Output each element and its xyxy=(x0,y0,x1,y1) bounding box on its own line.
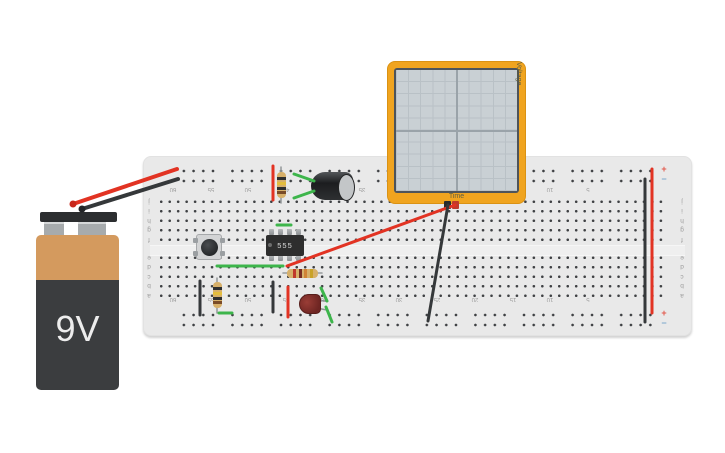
resistor-band xyxy=(277,182,286,185)
resistor-band xyxy=(277,177,286,180)
resistor-band xyxy=(213,297,222,300)
ic-label: 555 xyxy=(277,241,293,250)
pushbutton-leg xyxy=(193,238,198,243)
grid-major-horizontal xyxy=(396,130,517,132)
resistor-bottom-vertical[interactable] xyxy=(213,282,222,308)
ic-555-timer[interactable]: 555 xyxy=(266,235,304,256)
resistor-horizontal[interactable] xyxy=(287,269,318,278)
time-axis-label: Time xyxy=(388,193,525,200)
oscilloscope[interactable]: Time Voltage xyxy=(387,61,526,204)
pushbutton[interactable] xyxy=(196,234,222,260)
voltage-axis-label: Voltage xyxy=(515,62,522,193)
scope-terminal-red[interactable] xyxy=(452,201,459,209)
oscilloscope-screen xyxy=(396,70,517,191)
resistor-band xyxy=(310,269,313,278)
pushbutton-leg xyxy=(193,251,198,256)
resistor-band xyxy=(213,287,222,290)
resistor-band xyxy=(299,269,302,278)
pushbutton-leg xyxy=(220,251,225,256)
resistor-band xyxy=(277,191,286,194)
leads-layer xyxy=(0,0,725,453)
scope-terminal-black[interactable] xyxy=(444,201,451,209)
resistor-band xyxy=(277,187,286,190)
oscilloscope-bezel xyxy=(394,68,519,193)
resistor-band xyxy=(304,269,307,278)
led[interactable] xyxy=(299,294,321,314)
resistor-band xyxy=(293,269,296,278)
circuit-canvas: + − + − 60555045403530252015105 60555045… xyxy=(0,0,725,453)
resistor-band xyxy=(213,292,222,295)
resistor-band xyxy=(213,301,222,304)
resistor-top-vertical[interactable] xyxy=(277,172,286,198)
pushbutton-leg xyxy=(220,238,225,243)
pushbutton-cap[interactable] xyxy=(201,239,218,256)
ic-notch xyxy=(268,243,272,247)
capacitor-end-face xyxy=(338,174,355,201)
